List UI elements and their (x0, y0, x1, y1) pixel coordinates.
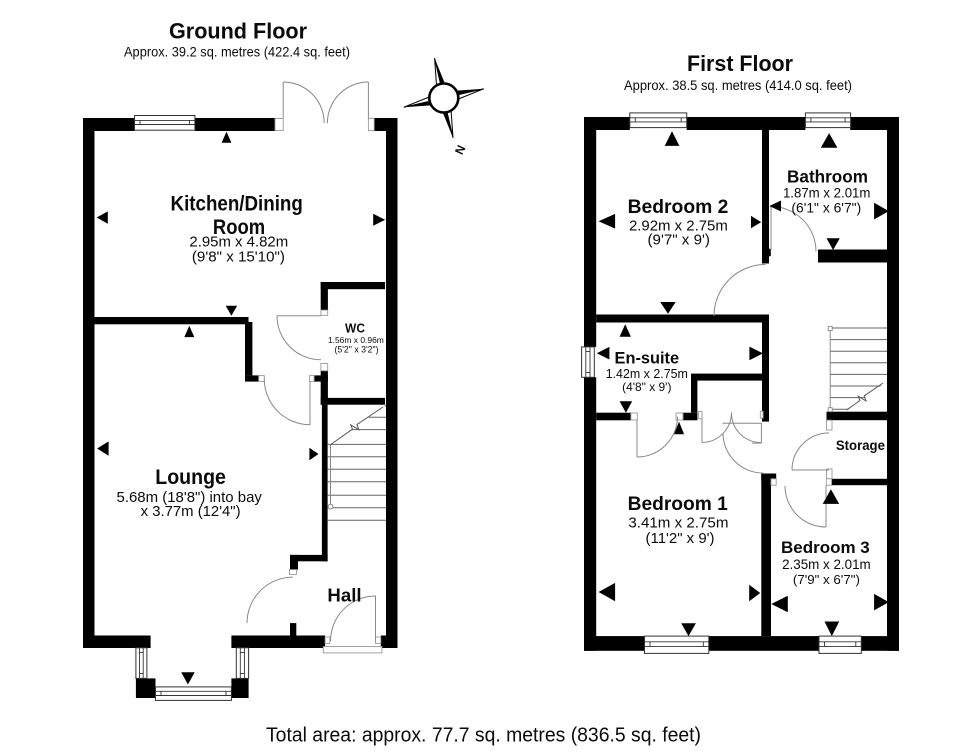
svg-text:(11'2" x 9'): (11'2" x 9') (646, 530, 715, 547)
svg-text:Total area: approx. 77.7 sq. m: Total area: approx. 77.7 sq. metres (836… (266, 724, 701, 747)
svg-text:En-suite: En-suite (615, 350, 680, 368)
svg-text:Bedroom 2: Bedroom 2 (628, 196, 729, 218)
svg-text:Hall: Hall (327, 585, 361, 606)
svg-text:(9'8" x 15'10"): (9'8" x 15'10") (192, 249, 285, 266)
svg-text:(4'8" x 9'): (4'8" x 9') (622, 380, 671, 394)
svg-text:1.42m x 2.75m: 1.42m x 2.75m (606, 367, 688, 381)
svg-text:2.35m x 2.01m: 2.35m x 2.01m (782, 557, 871, 572)
svg-text:Bathroom: Bathroom (787, 166, 868, 186)
svg-text:Approx. 38.5 sq. metres (414.0: Approx. 38.5 sq. metres (414.0 sq. feet) (624, 77, 852, 93)
svg-text:Ground Floor: Ground Floor (169, 19, 307, 44)
svg-text:(5'2" x 3'2"): (5'2" x 3'2") (335, 345, 379, 355)
svg-text:First Floor: First Floor (687, 51, 793, 76)
svg-text:(7'9" x 6'7"): (7'9" x 6'7") (793, 572, 860, 587)
svg-text:1.87m x 2.01m: 1.87m x 2.01m (783, 186, 871, 201)
svg-text:Approx. 39.2 sq. metres (422.4: Approx. 39.2 sq. metres (422.4 sq. feet) (124, 44, 350, 60)
svg-text:Bedroom 3: Bedroom 3 (781, 538, 870, 557)
svg-text:x 3.77m (12'4"): x 3.77m (12'4") (141, 503, 241, 520)
svg-text:Storage: Storage (836, 438, 885, 453)
svg-text:3.41m x 2.75m: 3.41m x 2.75m (628, 514, 728, 531)
svg-text:WC: WC (345, 322, 365, 336)
svg-text:Lounge: Lounge (155, 466, 226, 489)
svg-text:(6'1" x 6'7"): (6'1" x 6'7") (791, 201, 861, 216)
svg-text:Kitchen/Dining: Kitchen/Dining (171, 193, 303, 216)
svg-text:Bedroom 1: Bedroom 1 (628, 493, 728, 515)
svg-text:N: N (452, 143, 468, 157)
svg-text:(9'7" x 9'): (9'7" x 9') (648, 232, 710, 249)
svg-text:1.56m x 0.96m: 1.56m x 0.96m (328, 335, 384, 345)
